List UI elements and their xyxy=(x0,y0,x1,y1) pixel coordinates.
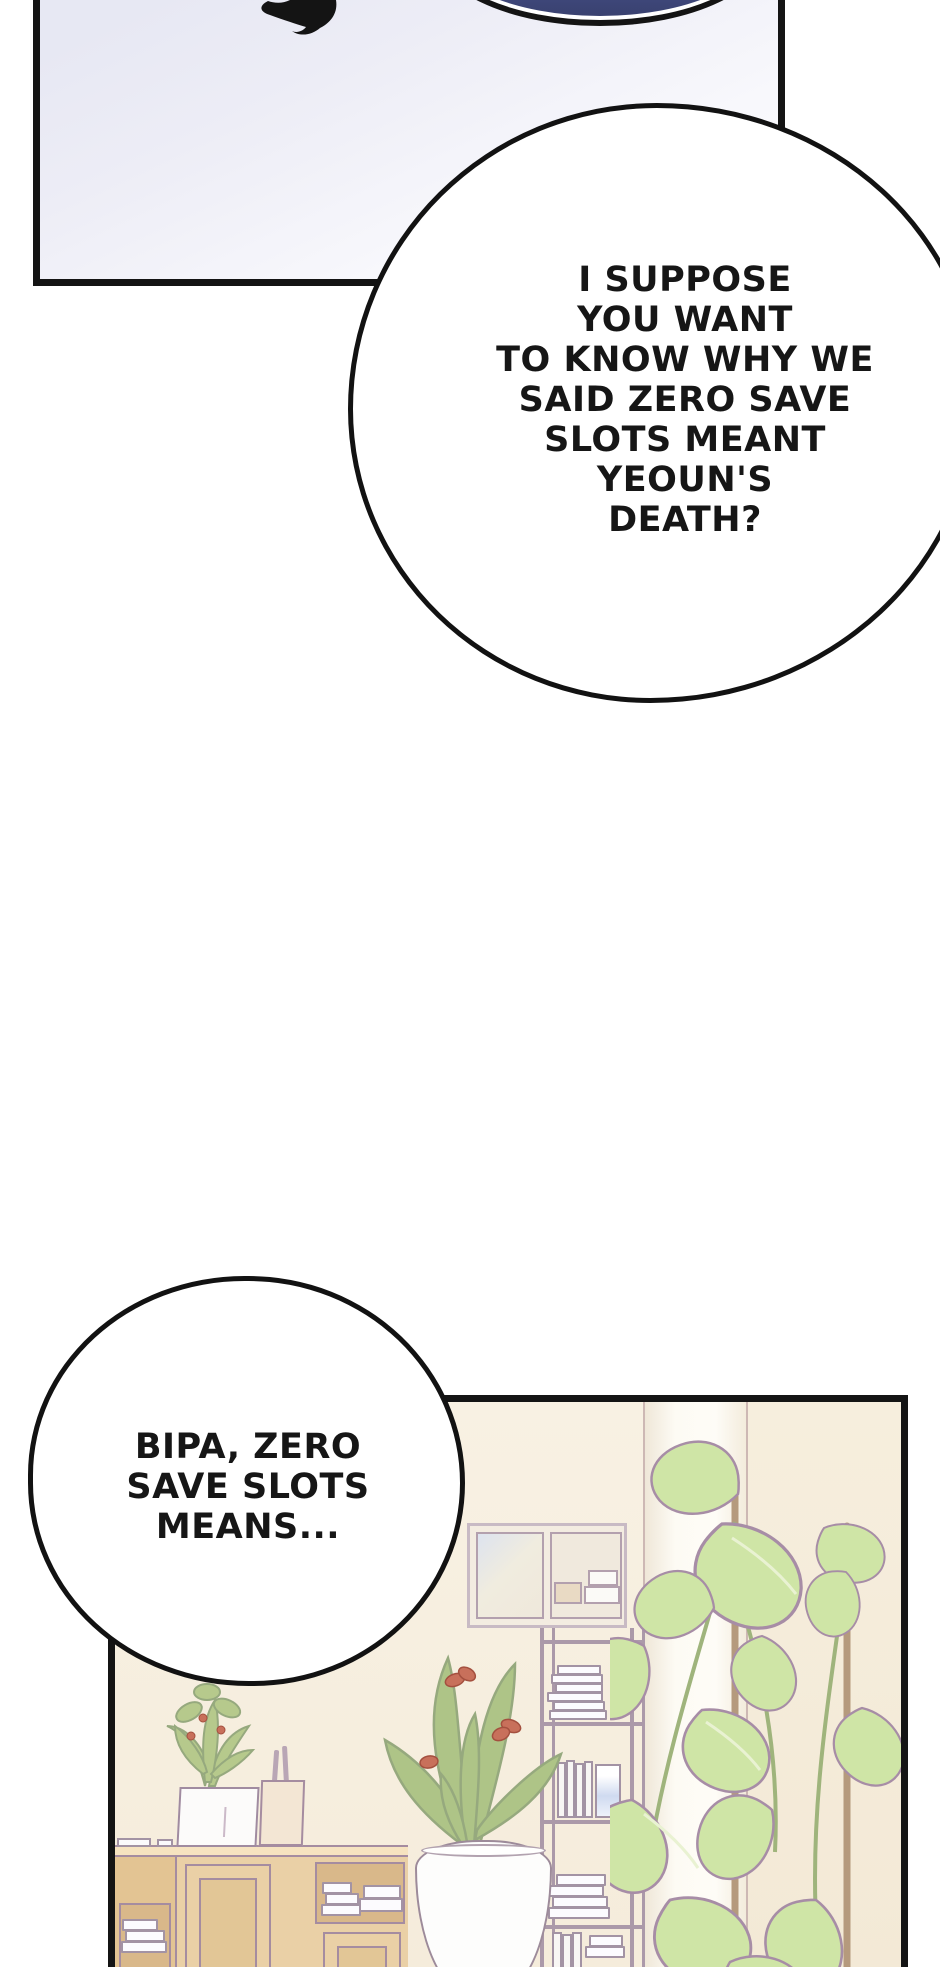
speech-line: YEOUN'S xyxy=(445,460,925,500)
speech-line: TO KNOW WHY WE xyxy=(445,340,925,380)
climbing-plant xyxy=(610,1422,901,1967)
door-panel xyxy=(337,1946,387,1967)
planter-box xyxy=(176,1787,259,1847)
book-stack xyxy=(546,1885,604,1897)
book xyxy=(552,1932,562,1967)
sideboard-door xyxy=(323,1932,401,1967)
speech-line: YOU WANT xyxy=(445,300,925,340)
plant-pot xyxy=(415,1840,552,1967)
speech-line: BIPA, ZERO xyxy=(68,1427,428,1467)
dark-bubble xyxy=(432,0,768,26)
center-plant xyxy=(363,1622,578,1852)
sideboard-door xyxy=(185,1864,271,1967)
cabinet-drawer xyxy=(554,1582,582,1604)
sideboard-body xyxy=(115,1857,408,1967)
book-stack xyxy=(556,1874,606,1886)
small-item-on-sideboard xyxy=(157,1839,173,1847)
book-stack xyxy=(363,1885,401,1899)
sideboard-end xyxy=(115,1857,177,1967)
pen-box xyxy=(259,1780,305,1846)
remote-on-sideboard xyxy=(117,1838,151,1847)
pot-rim xyxy=(421,1844,546,1857)
dark-bubble-fill xyxy=(442,0,758,16)
book-stack xyxy=(322,1882,352,1894)
book-stack xyxy=(125,1930,165,1942)
speech-line: MEANS... xyxy=(68,1507,428,1547)
ink-squiggle xyxy=(252,0,342,38)
speech-line: DEATH? xyxy=(445,500,925,540)
display-cabinet xyxy=(467,1523,627,1628)
speech-text-small: BIPA, ZERO SAVE SLOTS MEANS... xyxy=(68,1427,428,1547)
book-stack xyxy=(122,1919,158,1931)
book-stack xyxy=(321,1904,361,1916)
speech-line: SLOTS MEANT xyxy=(445,420,925,460)
book xyxy=(584,1761,593,1818)
book xyxy=(562,1934,572,1967)
comic-page: I SUPPOSE YOU WANT TO KNOW WHY WE SAID Z… xyxy=(0,0,940,1967)
sideboard-shelf xyxy=(315,1862,405,1924)
door-panel xyxy=(199,1878,257,1967)
speech-line: SAVE SLOTS xyxy=(68,1467,428,1507)
speech-bubble-large: I SUPPOSE YOU WANT TO KNOW WHY WE SAID Z… xyxy=(348,103,940,703)
book-stack xyxy=(359,1898,403,1912)
book-stack xyxy=(548,1907,610,1919)
speech-line: I SUPPOSE xyxy=(445,260,925,300)
cabinet-door-left xyxy=(476,1532,544,1619)
small-plant xyxy=(145,1674,275,1794)
book-stack xyxy=(552,1896,608,1908)
book-stack xyxy=(121,1941,167,1953)
book xyxy=(572,1932,582,1967)
book-stack xyxy=(325,1893,359,1905)
speech-text-large: I SUPPOSE YOU WANT TO KNOW WHY WE SAID Z… xyxy=(445,260,925,540)
speech-bubble-small: BIPA, ZERO SAVE SLOTS MEANS... xyxy=(28,1276,465,1686)
speech-line: SAID ZERO SAVE xyxy=(445,380,925,420)
planter-label xyxy=(223,1807,249,1837)
